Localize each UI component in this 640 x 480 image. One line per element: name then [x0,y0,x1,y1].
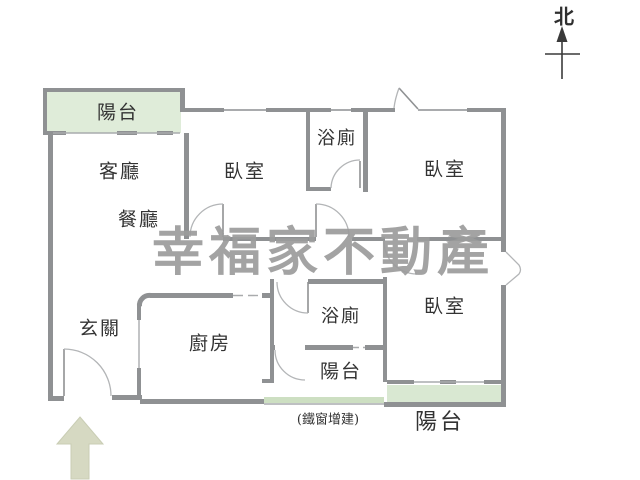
room-label-bedroom-top-left: 臥室 [224,157,266,184]
room-label-bath-bottom: 浴廁 [321,302,361,328]
iron-window-note: (鐵窗增建) [297,409,359,428]
entrance-arrow [57,417,103,479]
room-label-entry: 玄關 [79,314,121,341]
floorplan-page: 幸福家不動產 北 陽台 客廳 餐廳 臥室 浴廁 臥室 玄關 廚房 浴廁 陽台 臥… [0,0,640,480]
room-label-bedroom-top-right: 臥室 [424,155,466,182]
north-arrow [545,26,580,79]
iron-window-strip [264,397,384,403]
room-label-living: 客廳 [99,157,141,184]
room-label-balcony-small: 陽台 [320,357,362,384]
room-label-bedroom-bottom-right: 臥室 [424,292,466,319]
north-label: 北 [554,1,574,30]
bottom-right-balcony-fill [387,385,501,403]
room-label-bath-top: 浴廁 [317,124,357,150]
room-label-balcony-top: 陽台 [97,98,139,125]
watermark-text: 幸福家不動產 [152,210,512,285]
room-label-kitchen: 廚房 [189,329,231,356]
entrance-door-arc [64,349,111,396]
room-label-dining: 餐廳 [118,205,160,232]
room-label-balcony-bottom: 陽台 [415,404,465,436]
